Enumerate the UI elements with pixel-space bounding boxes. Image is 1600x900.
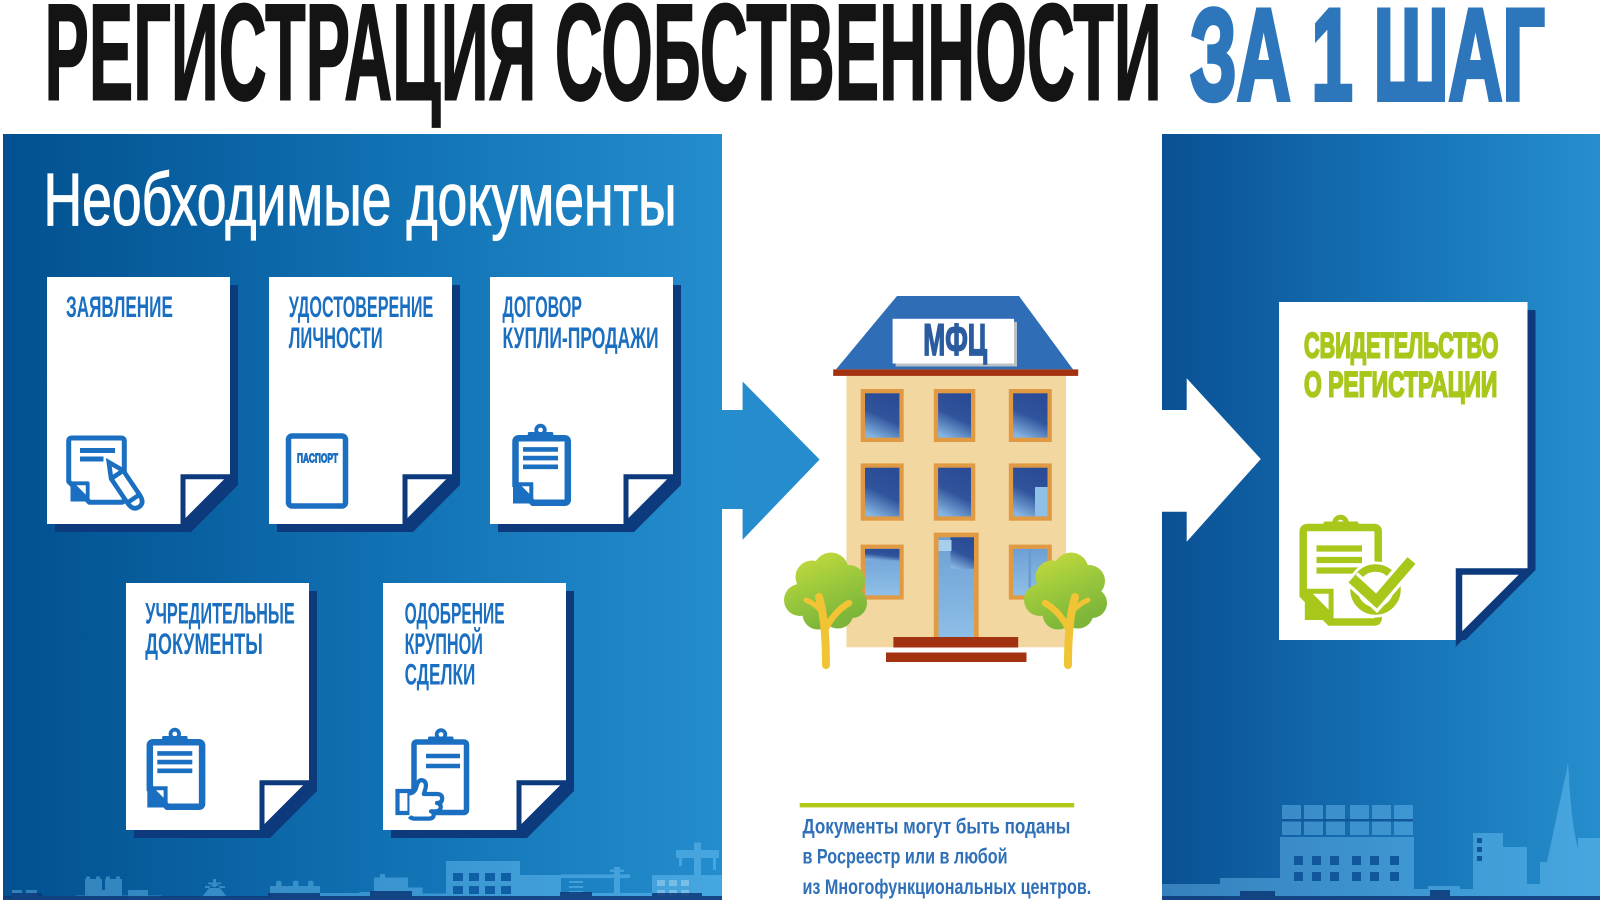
svg-text:РЕГИСТРАЦИЯ СОБСТВЕННОСТИ: РЕГИСТРАЦИЯ СОБСТВЕННОСТИ	[45, 0, 1162, 129]
svg-text:ЛИЧНОСТИ: ЛИЧНОСТИ	[289, 322, 383, 355]
svg-text:УДОСТОВЕРЕНИЕ: УДОСТОВЕРЕНИЕ	[289, 291, 434, 325]
svg-text:УЧРЕДИТЕЛЬНЫЕ: УЧРЕДИТЕЛЬНЫЕ	[145, 597, 295, 630]
svg-text:ДОКУМЕНТЫ: ДОКУМЕНТЫ	[145, 629, 262, 662]
svg-text:ОДОБРЕНИЕ: ОДОБРЕНИЕ	[405, 598, 505, 631]
svg-text:О РЕГИСТРАЦИИ: О РЕГИСТРАЦИИ	[1304, 365, 1497, 404]
svg-text:ЗА 1 ШАГ: ЗА 1 ШАГ	[1190, 0, 1545, 128]
svg-text:СДЕЛКИ: СДЕЛКИ	[405, 659, 476, 692]
svg-text:КУПЛИ-ПРОДАЖИ: КУПЛИ-ПРОДАЖИ	[503, 322, 659, 355]
svg-text:Необходимые документы: Необходимые документы	[44, 157, 677, 241]
svg-text:ПАСПОРТ: ПАСПОРТ	[297, 452, 338, 466]
svg-text:СВИДЕТЕЛЬСТВО: СВИДЕТЕЛЬСТВО	[1304, 326, 1498, 366]
svg-text:ДОГОВОР: ДОГОВОР	[503, 291, 583, 325]
svg-text:ЗАЯВЛЕНИЕ: ЗАЯВЛЕНИЕ	[66, 291, 173, 324]
svg-text:КРУПНОЙ: КРУПНОЙ	[405, 627, 483, 662]
svg-text:в Росреестр или в любой: в Росреестр или в любой	[803, 845, 1008, 869]
svg-text:из Многофункциональных центров: из Многофункциональных центров.	[803, 875, 1092, 899]
svg-text:Документы могут быть поданы: Документы могут быть поданы	[803, 816, 1071, 839]
svg-text:МФЦ: МФЦ	[923, 315, 987, 365]
